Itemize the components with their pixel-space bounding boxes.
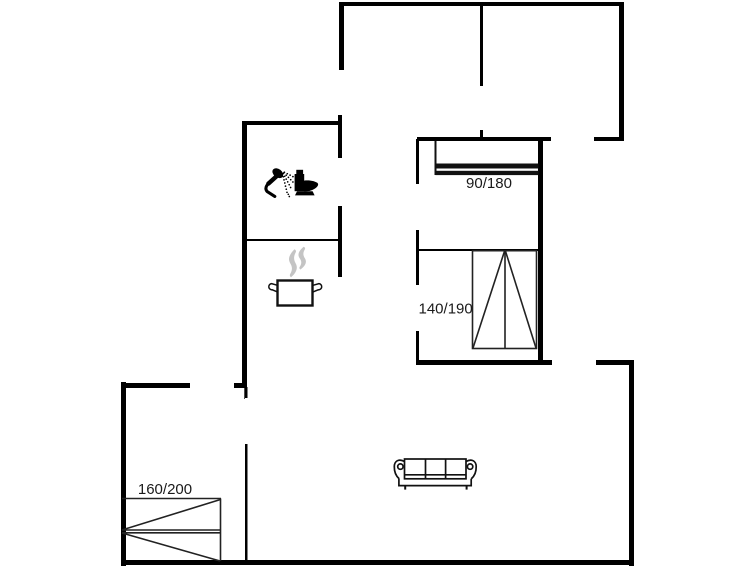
svg-text:140/190: 140/190 [419,301,473,318]
svg-text:90/180: 90/180 [466,175,512,192]
svg-text:160/200: 160/200 [138,481,192,498]
